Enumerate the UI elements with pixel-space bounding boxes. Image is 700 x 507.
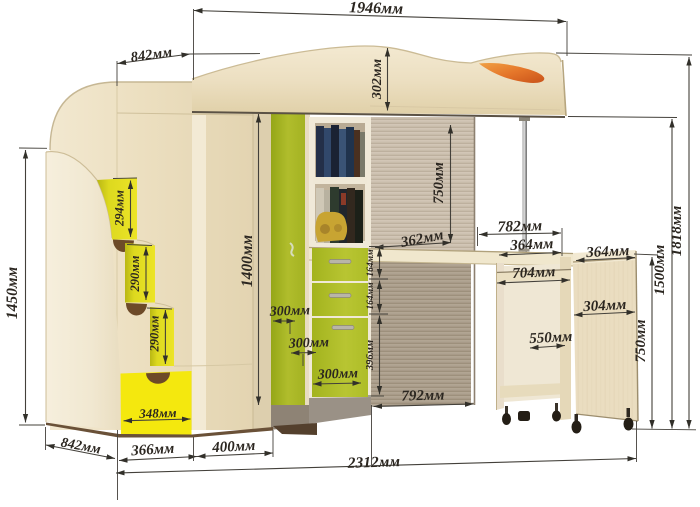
svg-text:1946мм: 1946мм bbox=[349, 0, 403, 18]
svg-text:364мм: 364мм bbox=[585, 243, 630, 261]
svg-text:750мм: 750мм bbox=[431, 162, 447, 204]
svg-text:1450мм: 1450мм bbox=[4, 267, 21, 320]
svg-text:300мм: 300мм bbox=[288, 335, 330, 351]
svg-text:304мм: 304мм bbox=[582, 297, 627, 315]
svg-text:1400мм: 1400мм bbox=[239, 235, 256, 288]
svg-text:302мм: 302мм bbox=[370, 59, 385, 101]
svg-text:300мм: 300мм bbox=[269, 303, 311, 319]
svg-text:782мм: 782мм bbox=[497, 217, 542, 236]
svg-text:290мм: 290мм bbox=[128, 255, 142, 292]
svg-text:704мм: 704мм bbox=[512, 264, 556, 282]
svg-text:792мм: 792мм bbox=[401, 387, 444, 404]
svg-text:400мм: 400мм bbox=[211, 438, 256, 456]
svg-text:550мм: 550мм bbox=[529, 329, 573, 347]
svg-text:294мм: 294мм bbox=[113, 190, 127, 227]
svg-text:2312мм: 2312мм bbox=[346, 453, 400, 472]
svg-text:396мм: 396мм bbox=[365, 340, 376, 371]
svg-text:750мм: 750мм bbox=[633, 319, 649, 362]
svg-text:164мм: 164мм bbox=[366, 282, 376, 310]
svg-text:164мм: 164мм bbox=[366, 249, 376, 277]
svg-text:1500мм: 1500мм bbox=[652, 245, 668, 296]
svg-text:348мм: 348мм bbox=[138, 405, 177, 421]
svg-text:300мм: 300мм bbox=[317, 366, 359, 382]
svg-text:290мм: 290мм bbox=[148, 315, 162, 352]
svg-text:364мм: 364мм bbox=[509, 236, 554, 254]
svg-text:1818мм: 1818мм bbox=[669, 206, 685, 257]
svg-text:366мм: 366мм bbox=[130, 441, 175, 460]
